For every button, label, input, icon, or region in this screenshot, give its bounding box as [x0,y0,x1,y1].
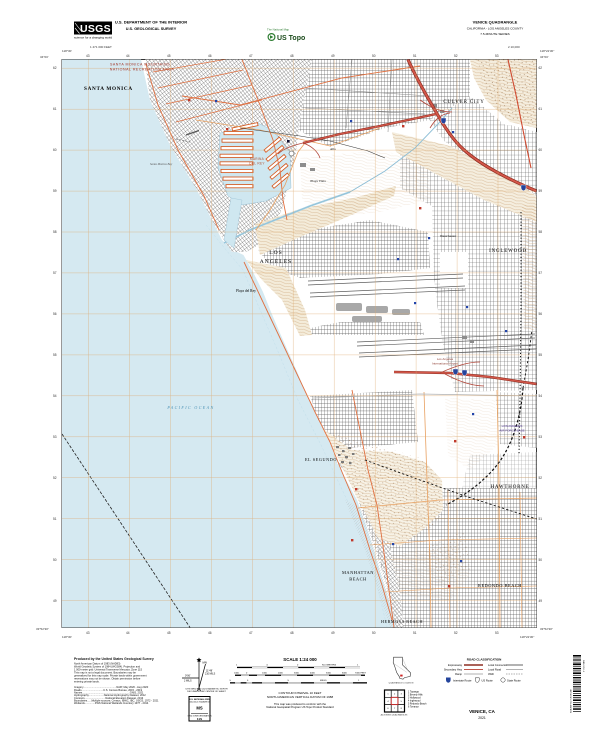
svg-text:Santa Monica Bay: Santa Monica Bay [150,162,173,166]
svg-text:Westchester: Westchester [440,234,457,238]
svg-text:44: 44 [126,54,130,58]
svg-text:LOS: LOS [269,250,283,256]
svg-text:Playa del Rey: Playa del Rey [236,289,256,293]
svg-text:57: 57 [53,271,57,275]
svg-text:2 10,000: 2 10,000 [508,45,520,49]
svg-text:DECLINATION AT CENTER OF SHEET: DECLINATION AT CENTER OF SHEET [187,690,226,693]
svg-text:ADJOINING QUADRANGLES: ADJOINING QUADRANGLES [381,714,408,717]
svg-text:51: 51 [413,54,417,58]
svg-text:61: 61 [53,107,57,111]
svg-text:Interstate Route: Interstate Route [453,679,472,683]
svg-text:6000: 6000 [342,672,348,674]
svg-text:62: 62 [53,66,57,70]
svg-text:MN: MN [203,661,207,665]
svg-text:2000: 2000 [278,672,284,674]
svg-text:46: 46 [208,54,212,58]
svg-text:Alla: Alla [330,147,336,151]
svg-text:53: 53 [495,631,499,635]
svg-text:KILOMETERS: KILOMETERS [322,665,337,667]
svg-text:210 MILS: 210 MILS [205,673,216,676]
svg-text:53: 53 [539,435,543,439]
svg-text:5 Redondo Beach: 5 Redondo Beach [408,704,427,706]
svg-text:International Airport: International Airport [432,362,458,366]
svg-text:60: 60 [53,148,57,152]
svg-text:6 Torrance: 6 Torrance [408,706,420,709]
svg-text:44: 44 [126,631,130,635]
svg-text:Ramp: Ramp [455,672,462,676]
svg-text:HAWTHORNE: HAWTHORNE [490,485,529,490]
svg-text:National Geospatial Program US: National Geospatial Program US Topo Prod… [266,705,334,709]
svg-text:33°52'30": 33°52'30" [540,627,553,631]
svg-text:55: 55 [53,353,57,357]
svg-text:VENICE, CA: VENICE, CA [469,709,496,714]
svg-text:5000: 5000 [326,672,332,674]
svg-text:47: 47 [249,631,253,635]
svg-text:MILES: MILES [320,680,327,682]
svg-text:The National Map: The National Map [267,28,290,32]
svg-text:51: 51 [53,517,57,521]
svg-text:54: 54 [53,394,57,398]
svg-text:3 Hollywood: 3 Hollywood [408,698,421,700]
svg-text:Los Angeles: Los Angeles [437,357,454,361]
svg-text:49: 49 [539,599,543,603]
svg-text:53: 53 [53,435,57,439]
svg-text:62: 62 [539,66,543,70]
svg-text:100,000-m SQUARE ID: 100,000-m SQUARE ID [190,701,211,704]
svg-text:HERMOSA BEACH: HERMOSA BEACH [381,619,423,624]
svg-text:49: 49 [331,631,335,635]
svg-text:Playa Vista: Playa Vista [310,179,326,183]
svg-text:52: 52 [454,631,458,635]
svg-text:118°22'30": 118°22'30" [540,49,554,53]
svg-text:43: 43 [86,631,90,635]
svg-text:REDONDO BEACH: REDONDO BEACH [478,583,522,588]
svg-text:58: 58 [539,230,543,234]
svg-text:1000: 1000 [234,672,240,674]
svg-text:2 Beverly Hills: 2 Beverly Hills [408,694,423,697]
svg-text:57: 57 [539,271,543,275]
svg-text:INGLEWOOD: INGLEWOOD [489,249,527,254]
svg-text:51: 51 [413,631,417,635]
svg-text:Produced by the United States: Produced by the United States Geological… [74,657,154,661]
svg-text:EL SEGUNDO: EL SEGUNDO [305,457,337,462]
svg-text:52: 52 [539,476,543,480]
svg-text:43: 43 [86,54,90,58]
svg-text:AIR FORCE BASE: AIR FORCE BASE [499,429,524,433]
svg-text:USGS: USGS [80,23,111,35]
svg-text:60: 60 [539,148,543,152]
svg-text:118°22'30": 118°22'30" [520,635,534,639]
svg-text:U.S. NATIONAL GRID: U.S. NATIONAL GRID [189,698,210,701]
svg-text:QUADRANGLE LOCATION: QUADRANGLE LOCATION [389,682,414,685]
svg-text:ISBN 978-1-6: ISBN 978-1-6 [582,660,584,673]
svg-text:49: 49 [331,54,335,58]
svg-text:56: 56 [539,312,543,316]
svg-text:50: 50 [372,54,376,58]
svg-text:1 Topanga: 1 Topanga [408,692,419,694]
svg-text:LOS ANGELES: LOS ANGELES [502,424,523,428]
svg-text:SCALE 1:24 000: SCALE 1:24 000 [283,657,317,662]
svg-text:NGA REF NO. USGSX24K: NGA REF NO. USGSX24K [570,688,573,713]
svg-text:54: 54 [539,394,543,398]
svg-text:11S: 11S [197,717,202,721]
svg-text:Local Connector: Local Connector [488,663,507,667]
svg-text:55: 55 [539,353,543,357]
svg-text:U.S. GEOLOGICAL SURVEY: U.S. GEOLOGICAL SURVEY [126,27,177,31]
svg-text:MANHATTAN: MANHATTAN [342,570,374,575]
svg-text:4WD: 4WD [488,672,494,676]
svg-text:56: 56 [53,312,57,316]
svg-text:46: 46 [208,631,212,635]
svg-text:NATIONAL RECREATION AREA: NATIONAL RECREATION AREA [110,68,175,72]
svg-text:118°30': 118°30' [62,635,72,639]
svg-text:34°00': 34°00' [40,55,49,59]
svg-text:45: 45 [167,54,171,58]
svg-text:2 MILS: 2 MILS [184,680,192,683]
svg-text:7000 FEET: 7000 FEET [355,672,367,674]
svg-text:ANGELES: ANGELES [260,259,292,265]
svg-text:51: 51 [539,517,543,521]
svg-text:48: 48 [290,54,294,58]
svg-text:0°06': 0°06' [185,675,191,678]
svg-text:48: 48 [290,631,294,635]
svg-text:ROAD CLASSIFICATION: ROAD CLASSIFICATION [467,658,502,662]
svg-text:MARINA: MARINA [250,157,265,161]
svg-text:PACIFIC OCEAN: PACIFIC OCEAN [166,405,214,410]
svg-text:US Topo: US Topo [277,35,305,42]
svg-text:VENICE QUADRANGLE: VENICE QUADRANGLE [473,20,518,25]
svg-text:MS: MS [196,706,202,711]
svg-text:science for a changing world: science for a changing world [74,36,112,40]
svg-text:49: 49 [53,599,57,603]
svg-text:118°30': 118°30' [62,49,72,53]
svg-text:4 Inglewood: 4 Inglewood [408,701,421,703]
svg-text:1000: 1000 [262,672,268,674]
svg-text:Expressway: Expressway [448,663,463,667]
svg-text:50: 50 [539,558,543,562]
svg-text:State Route: State Route [507,679,521,683]
svg-text:CALIFORNIA - LOS ANGELES COUNT: CALIFORNIA - LOS ANGELES COUNTY [467,27,524,31]
svg-text:4000: 4000 [310,672,316,674]
svg-text:Wetlands..............FWS Nati: Wetlands..............FWS National Wetla… [74,701,149,705]
svg-text:58: 58 [53,230,57,234]
svg-text:61: 61 [539,107,543,111]
svg-text:1 471 000 FEET: 1 471 000 FEET [90,45,112,49]
svg-text:SANTA MONICA MOUNTAINS: SANTA MONICA MOUNTAINS [110,63,170,67]
svg-text:DEL REY: DEL REY [249,162,265,166]
svg-text:52: 52 [53,476,57,480]
svg-text:BEACH: BEACH [349,577,367,582]
svg-text:50: 50 [53,558,57,562]
svg-text:This map was produced to confo: This map was produced to conform with th… [274,702,326,706]
svg-text:U.S. DEPARTMENT OF THE INTERIO: U.S. DEPARTMENT OF THE INTERIOR [115,20,187,25]
svg-text:52: 52 [454,54,458,58]
svg-text:entering private lands.: entering private lands. [74,680,100,684]
svg-text:7.5-MINUTE SERIES: 7.5-MINUTE SERIES [480,32,509,36]
svg-text:Local Road: Local Road [488,668,502,672]
svg-text:UTM GRID AND 2021 MAGNETIC NOR: UTM GRID AND 2021 MAGNETIC NORTH [186,687,228,690]
svg-text:US Route: US Route [482,679,494,683]
svg-text:Secondary Hwy: Secondary Hwy [444,668,463,672]
svg-text:59: 59 [539,189,543,193]
svg-text:45: 45 [167,631,171,635]
svg-text:NORTH AMERICAN VERTICAL DATUM: NORTH AMERICAN VERTICAL DATUM OF 1988 [267,695,334,699]
svg-text:SANTA MONICA: SANTA MONICA [84,86,133,92]
svg-text:33°52'30": 33°52'30" [36,627,49,631]
svg-text:3000: 3000 [294,672,300,674]
svg-text:53: 53 [495,54,499,58]
svg-text:50: 50 [372,631,376,635]
svg-text:47: 47 [249,54,253,58]
svg-text:59: 59 [53,189,57,193]
svg-text:34°00': 34°00' [540,55,549,59]
svg-text:CULVER CITY: CULVER CITY [443,100,484,105]
svg-text:2021: 2021 [478,716,486,720]
